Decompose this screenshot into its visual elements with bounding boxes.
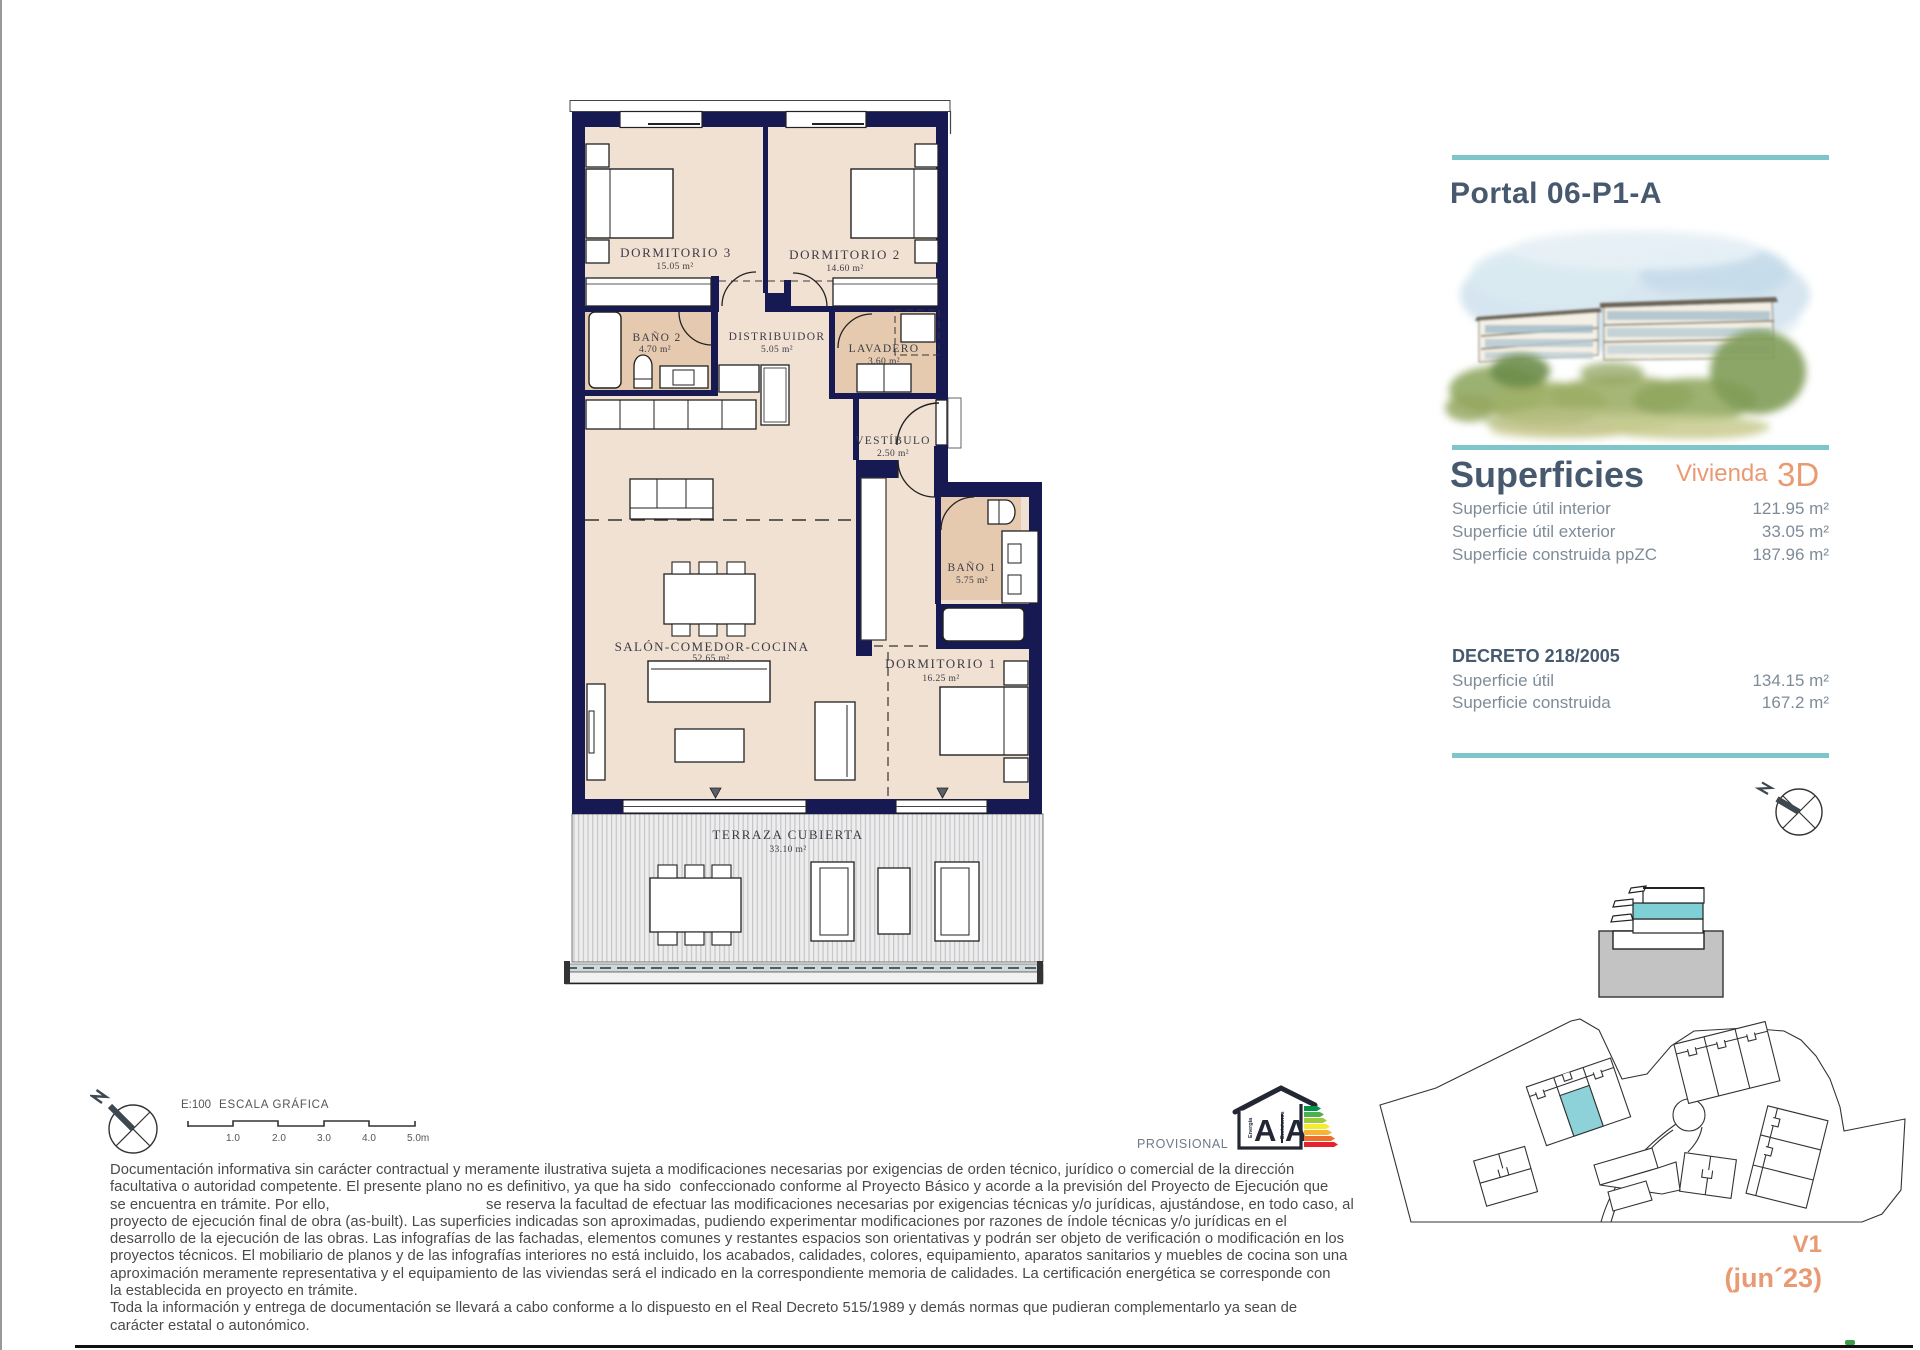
svg-text:4.0: 4.0: [362, 1133, 376, 1144]
svg-text:5.05 m²: 5.05 m²: [761, 345, 793, 355]
svg-text:LAVADERO: LAVADERO: [849, 343, 920, 355]
svg-text:Energía: Energía: [1248, 1117, 1254, 1138]
svg-text:5.0m: 5.0m: [407, 1133, 429, 1144]
svg-text:2.0: 2.0: [272, 1133, 286, 1144]
svg-text:TERRAZA CUBIERTA: TERRAZA CUBIERTA: [712, 827, 863, 842]
svg-text:33.10 m²: 33.10 m²: [769, 845, 806, 855]
svg-text:1.0: 1.0: [226, 1133, 240, 1144]
svg-text:4.70 m²: 4.70 m²: [639, 345, 671, 355]
svg-text:BAÑO 1: BAÑO 1: [947, 560, 996, 574]
svg-text:DORMITORIO 2: DORMITORIO 2: [789, 247, 901, 262]
svg-text:A: A: [1254, 1113, 1276, 1148]
svg-text:DORMITORIO 1: DORMITORIO 1: [885, 656, 997, 671]
svg-text:2.50 m²: 2.50 m²: [877, 449, 909, 459]
svg-text:5.75 m²: 5.75 m²: [956, 576, 988, 586]
svg-text:14.60 m²: 14.60 m²: [826, 264, 863, 274]
svg-text:DISTRIBUIDOR: DISTRIBUIDOR: [729, 331, 826, 343]
svg-text:3.60 m²: 3.60 m²: [868, 357, 900, 367]
svg-text:15.05 m²: 15.05 m²: [656, 262, 693, 272]
svg-text:3.0: 3.0: [317, 1133, 331, 1144]
svg-text:BAÑO 2: BAÑO 2: [632, 330, 681, 344]
svg-text:52.65 m²: 52.65 m²: [692, 654, 729, 664]
svg-text:Emisiones: Emisiones: [1280, 1111, 1286, 1139]
svg-text:VESTÍBULO: VESTÍBULO: [855, 433, 931, 447]
svg-text:DORMITORIO 3: DORMITORIO 3: [620, 245, 732, 260]
svg-text:SALÓN-COMEDOR-COCINA: SALÓN-COMEDOR-COCINA: [615, 639, 810, 654]
svg-text:16.25 m²: 16.25 m²: [922, 674, 959, 684]
